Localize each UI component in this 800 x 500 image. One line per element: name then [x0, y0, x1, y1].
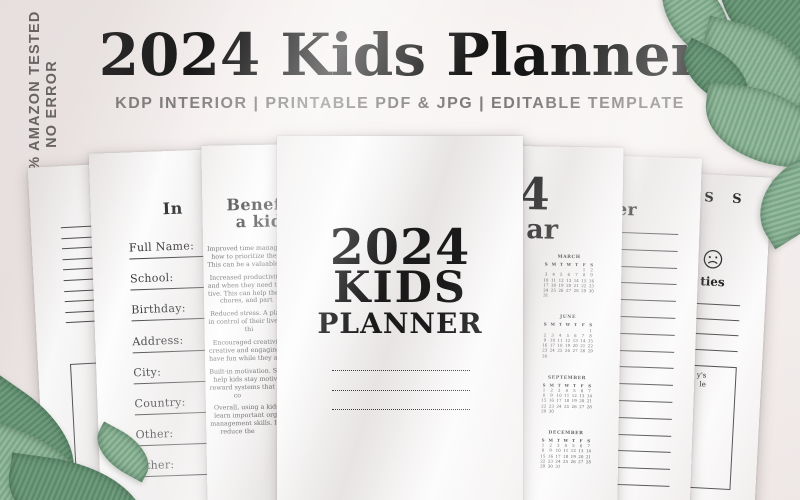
mini-month-day [557, 293, 565, 298]
mini-month-day: 29 [539, 464, 547, 469]
cover-kids: KIDS [277, 268, 523, 308]
mini-month-day: 30 [547, 408, 555, 413]
mini-month-day [572, 293, 580, 298]
page-title: 2024 Kids Planner [0, 18, 800, 92]
mini-month-day [565, 293, 573, 298]
mini-month-grid: SMTWTFS123456789101112131415161718192021… [539, 438, 596, 470]
page-subtitle: KDP INTERIOR | PRINTABLE PDF & JPG | EDI… [0, 95, 800, 113]
ruled-line [332, 409, 470, 410]
mini-month-name: SEPTEMBER [540, 375, 593, 381]
mini-month-day [549, 293, 557, 298]
mini-month-day [564, 353, 572, 358]
mini-month-day [584, 464, 592, 469]
mini-month-day: 29 [540, 408, 548, 413]
mini-month-grid: SMTWTFS123456789101112131415161718192021… [541, 322, 598, 359]
mini-month-day: 30 [546, 464, 554, 469]
mini-month-name: JUNE [541, 315, 594, 321]
mini-month-day: 31 [542, 293, 550, 298]
product-mockup: 100% AMAZON TESTED NO ERROR 2024 Kids Pl… [0, 0, 800, 500]
mini-month-name: DECEMBER [539, 431, 592, 437]
mini-month-day [578, 409, 586, 414]
sad-face-icon [702, 248, 724, 270]
mini-month-day [587, 293, 595, 298]
mini-month-day [556, 353, 564, 358]
mini-month-day [570, 409, 578, 414]
cover-dotted-lines [332, 370, 470, 429]
mini-month-day [585, 409, 593, 414]
mini-month: SEPTEMBERSMTWTFS123456789101112131415161… [540, 375, 597, 414]
cover-year: 2024 [277, 226, 523, 268]
mini-month-day [579, 354, 587, 359]
mini-month-day [548, 353, 556, 358]
mini-month-day: 30 [541, 353, 549, 358]
mini-month: JUNESMTWTFS12345678910111213141516171819… [541, 315, 598, 359]
mini-month-name: MARCH [543, 254, 596, 260]
mini-month-day [586, 354, 594, 359]
ruled-line [332, 370, 470, 371]
calendar-months: MARCHSMTWTFS1234567891011121314151617181… [539, 254, 599, 486]
mini-month-day [571, 354, 579, 359]
info-form-title: In [162, 199, 183, 219]
mini-month-day [569, 464, 577, 469]
mini-month-day [555, 409, 563, 414]
page-cover: 2024 KIDS PLANNER [277, 136, 523, 500]
cover-planner: PLANNER [277, 308, 523, 340]
activities-label-fragment: ties [700, 274, 725, 289]
mini-month-day [563, 409, 571, 414]
mini-month-day: 31 [554, 464, 562, 469]
mini-month: DECEMBERSMTWTFS1234567891011121314151617… [539, 431, 596, 470]
mini-month-grid: SMTWTFS123456789101112131415161718192021… [540, 382, 597, 414]
ruled-line [332, 390, 470, 391]
benefits-title-line-2: a kid [236, 211, 283, 231]
mini-month-day [577, 464, 585, 469]
calendar-word-fragment: ar [526, 216, 558, 245]
mini-month-day [562, 464, 570, 469]
mini-month-grid: SMTWTFS123456789101112131415161718192021… [542, 261, 599, 298]
mini-month: MARCHSMTWTFS1234567891011121314151617181… [542, 254, 599, 298]
calendar-year-fragment: 4 [519, 172, 550, 219]
mini-month-day [580, 293, 588, 298]
